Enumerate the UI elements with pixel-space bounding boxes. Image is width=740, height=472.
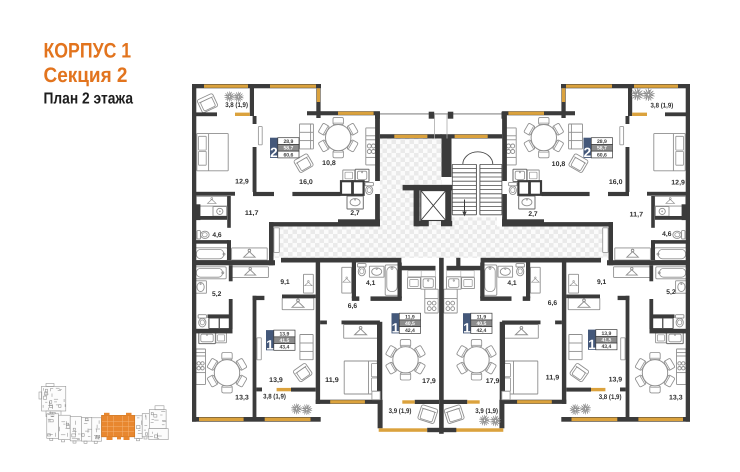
svg-text:42,4: 42,4 xyxy=(405,328,415,334)
svg-text:9,1: 9,1 xyxy=(280,279,290,286)
svg-text:41,5: 41,5 xyxy=(279,338,289,344)
svg-text:План 2 этажа: План 2 этажа xyxy=(44,90,134,107)
svg-text:12,9: 12,9 xyxy=(671,179,685,186)
svg-text:9,1: 9,1 xyxy=(597,279,607,286)
svg-text:11,9: 11,9 xyxy=(405,314,415,320)
svg-text:12,9: 12,9 xyxy=(235,178,249,185)
svg-text:КОРПУС 1: КОРПУС 1 xyxy=(44,40,132,63)
svg-text:1: 1 xyxy=(463,320,471,335)
svg-text:60,6: 60,6 xyxy=(283,152,293,158)
svg-text:5,2: 5,2 xyxy=(212,291,222,298)
svg-text:17,9: 17,9 xyxy=(422,378,436,385)
svg-text:28,9: 28,9 xyxy=(283,139,293,145)
svg-text:3,8 (1,9): 3,8 (1,9) xyxy=(225,102,248,109)
svg-text:17,9: 17,9 xyxy=(486,378,500,385)
svg-text:11,9: 11,9 xyxy=(546,375,560,382)
svg-text:4,6: 4,6 xyxy=(212,232,222,239)
svg-text:1: 1 xyxy=(392,320,400,335)
svg-text:1: 1 xyxy=(266,337,274,352)
svg-text:13,9: 13,9 xyxy=(269,377,283,384)
svg-text:3,9 (1,9): 3,9 (1,9) xyxy=(475,408,498,415)
svg-text:13,3: 13,3 xyxy=(235,394,249,401)
svg-text:13,9: 13,9 xyxy=(279,331,289,337)
svg-text:10,8: 10,8 xyxy=(322,160,336,167)
svg-text:4,6: 4,6 xyxy=(662,231,672,238)
svg-text:43,4: 43,4 xyxy=(279,345,289,351)
svg-text:3,8 (1,9): 3,8 (1,9) xyxy=(599,394,622,401)
svg-text:6,6: 6,6 xyxy=(348,303,358,310)
svg-text:60,6: 60,6 xyxy=(597,152,607,158)
svg-text:2,7: 2,7 xyxy=(350,210,360,217)
svg-text:40,5: 40,5 xyxy=(405,321,415,327)
svg-text:4,1: 4,1 xyxy=(366,280,376,287)
svg-text:58,7: 58,7 xyxy=(283,146,293,152)
svg-text:11,7: 11,7 xyxy=(245,210,259,217)
svg-text:13,3: 13,3 xyxy=(669,395,683,402)
svg-text:42,4: 42,4 xyxy=(476,328,486,334)
svg-text:1: 1 xyxy=(588,337,596,352)
svg-text:3,9 (1,9): 3,9 (1,9) xyxy=(389,408,412,415)
svg-text:5,2: 5,2 xyxy=(666,289,676,296)
svg-text:Секция 2: Секция 2 xyxy=(44,64,128,87)
svg-text:2,7: 2,7 xyxy=(528,211,538,218)
svg-text:3,8 (1,9): 3,8 (1,9) xyxy=(651,103,674,110)
svg-text:28,9: 28,9 xyxy=(597,139,607,145)
svg-text:11,9: 11,9 xyxy=(325,377,339,384)
svg-text:16,0: 16,0 xyxy=(299,179,313,186)
svg-text:11,9: 11,9 xyxy=(477,314,487,320)
svg-text:40,5: 40,5 xyxy=(476,321,486,327)
svg-text:43,4: 43,4 xyxy=(601,344,611,350)
svg-text:2: 2 xyxy=(270,145,278,160)
svg-text:11,7: 11,7 xyxy=(630,212,644,219)
svg-text:13,9: 13,9 xyxy=(609,376,623,383)
svg-text:4,1: 4,1 xyxy=(507,280,517,287)
svg-text:3,8 (1,9): 3,8 (1,9) xyxy=(263,394,286,401)
svg-text:2: 2 xyxy=(584,145,592,160)
svg-text:10,8: 10,8 xyxy=(552,161,566,168)
svg-text:58,7: 58,7 xyxy=(597,146,607,152)
svg-text:16,0: 16,0 xyxy=(609,179,623,186)
svg-text:41,5: 41,5 xyxy=(601,338,611,344)
svg-text:6,6: 6,6 xyxy=(548,300,558,307)
svg-text:13,9: 13,9 xyxy=(601,331,611,337)
